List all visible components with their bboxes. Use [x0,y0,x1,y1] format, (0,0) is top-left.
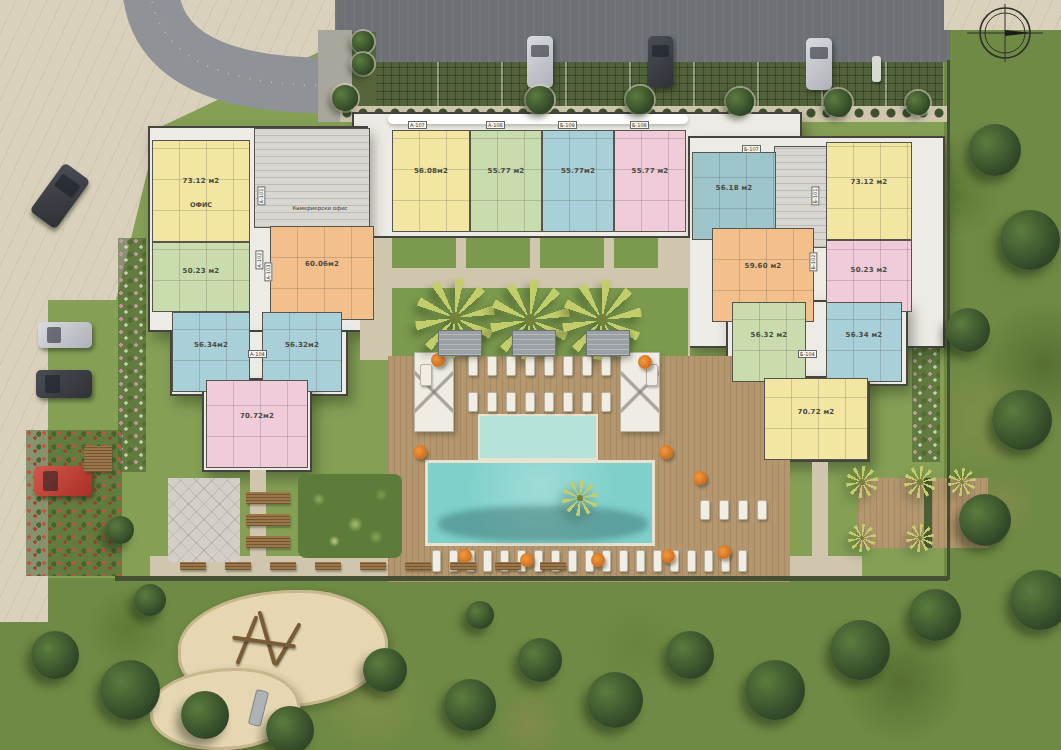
sun-lounger [544,356,554,376]
sun-lounger [525,356,535,376]
wild-tree [587,672,643,728]
unit-area-label: 56.18 м2 [693,184,775,192]
trimmed-tree [526,86,554,114]
wild-tree [745,660,805,720]
unit-code-tab: А-108 [486,121,505,129]
unit-code-tab: А-103 [264,263,272,282]
orange-umbrella [659,445,673,459]
unit-code-tab: Б-101 [811,187,819,206]
wild-tree [31,631,79,679]
path-bench [270,562,296,570]
palm-tree-small [904,466,936,498]
parked-car [29,162,90,229]
sun-lounger [506,392,516,412]
garden-pergola [586,330,630,356]
sun-lounger [544,392,554,412]
apartment-unit: 56.18 м2 [692,152,776,240]
sun-lounger [700,500,710,520]
apartment-unit: 55.77 м2 [614,130,686,232]
path-bench [315,562,341,570]
sun-lounger [563,392,573,412]
unit-area-label: 70.72 м2 [765,408,867,416]
sun-lounger [432,550,441,572]
wild-tree [830,620,890,680]
trimmed-tree [906,91,930,115]
orange-umbrella [413,445,427,459]
apartment-unit: 73.12 м2 [826,142,912,240]
unit-area-label: 50.23 м2 [827,266,911,274]
apartment-unit: 70.72м2 [206,380,308,468]
sun-lounger [506,356,516,376]
orange-umbrella [458,549,472,563]
sun-lounger [719,500,729,520]
wooden-bench [246,514,290,526]
unit-area-label: 50.23 м2 [153,267,249,275]
palm-tree-small [562,480,598,516]
wild-tree [666,631,714,679]
wooden-bench [84,446,112,472]
housekeeping-office-label: Камериерски офис [284,206,356,212]
unit-area-label: 55.77 м2 [471,167,541,175]
palm-tree-small [906,524,934,552]
unit-code-tab: Б-109 [558,121,577,129]
unit-area-label: 56.08м2 [393,167,469,175]
sun-lounger [487,392,497,412]
path-bench [495,562,521,570]
apartment-unit: 50.23 м2 [152,242,250,312]
unit-area-label: 73.12 м2 [153,177,249,185]
apartment-unit: 55.77м2 [542,130,614,232]
wild-tree [959,494,1011,546]
sun-lounger [619,550,628,572]
apartment-unit: 55.77 м2 [470,130,542,232]
sun-lounger [636,550,645,572]
unit-code-tab: А-102 [255,251,263,270]
unit-code-tab: А-101 [257,187,265,206]
wild-tree [992,390,1052,450]
wild-tree [181,691,229,739]
wild-tree [1000,210,1060,270]
site-plan-canvas: Камериерски офис 73.12 м2ОФИС50.23 м260.… [0,0,1061,750]
apartment-unit: 56.08м2 [392,130,470,232]
path-bench [405,562,431,570]
wild-tree [946,308,990,352]
palm-tree-small [846,466,878,498]
garden-pergola [438,330,482,356]
unit-area-label: 56.34 м2 [827,331,901,339]
sun-lounger [601,392,611,412]
parked-car [648,36,673,88]
wild-tree [518,638,562,682]
unit-area-label: 55.77 м2 [615,167,685,175]
sun-lounger [563,356,573,376]
unit-code-tab: Б-102 [809,253,817,272]
wild-tree [1010,570,1061,630]
orange-umbrella [693,471,707,485]
apartment-unit: 73.12 м2ОФИС [152,140,250,242]
path-bench [540,562,566,570]
orange-umbrella [520,553,534,567]
trimmed-tree [824,89,852,117]
unit-code-tab: Б-107 [742,145,761,153]
sun-lounger [582,392,592,412]
apartment-unit: 56.32 м2 [732,302,806,382]
wild-tree [466,601,494,629]
sun-lounger [582,356,592,376]
parked-car [806,38,832,90]
sun-lounger [420,364,432,386]
orange-umbrella [591,553,605,567]
sun-lounger [738,500,748,520]
orange-umbrella [717,545,731,559]
unit-code-tab: А-107 [408,121,427,129]
trimmed-tree [726,88,754,116]
palm-tree-small [848,524,876,552]
garden-pergola [512,330,556,356]
dynamic-feature-layer: 73.12 м2ОФИС50.23 м260.06м256.34м256.32м… [0,0,1061,750]
sun-lounger [483,550,492,572]
trimmed-tree [332,85,358,111]
wild-tree [266,706,314,750]
unit-code-tab: А-104 [248,350,267,358]
unit-area-label: 56.32м2 [263,341,341,349]
unit-office-label: ОФИС [153,201,249,209]
trimmed-tree [352,31,374,53]
sun-lounger [468,356,478,376]
sun-lounger [601,356,611,376]
wild-tree [106,516,134,544]
trimmed-tree [626,86,654,114]
apartment-unit: 60.06м2 [270,226,374,320]
palm-tree-small [948,468,976,496]
wild-tree [444,679,496,731]
orange-umbrella [661,549,675,563]
path-bench [225,562,251,570]
unit-code-tab: Б-108 [630,121,649,129]
unit-area-label: 73.12 м2 [827,178,911,186]
apartment-unit: 70.72 м2 [764,378,868,460]
sun-lounger [487,356,497,376]
parked-car [527,36,553,88]
unit-area-label: 60.06м2 [271,260,373,268]
orange-umbrella [638,355,652,369]
wild-tree [909,589,961,641]
apartment-unit: 56.34 м2 [826,302,902,382]
wild-tree [969,124,1021,176]
parked-car [38,322,92,348]
wild-tree [134,584,166,616]
parked-car [36,370,92,398]
wild-tree [363,648,407,692]
sun-lounger [468,392,478,412]
wild-tree [100,660,160,720]
unit-area-label: 56.34м2 [173,341,249,349]
unit-code-tab: Б-104 [798,350,817,358]
path-bench [180,562,206,570]
unit-area-label: 55.77м2 [543,167,613,175]
parked-motorbike [872,56,881,82]
path-bench [360,562,386,570]
trimmed-tree [352,53,374,75]
sun-lounger [687,550,696,572]
unit-area-label: 70.72м2 [207,412,307,420]
unit-area-label: 56.32 м2 [733,331,805,339]
sun-lounger [525,392,535,412]
sun-lounger [568,550,577,572]
wooden-bench [246,492,290,504]
sun-lounger [757,500,767,520]
path-bench [450,562,476,570]
sun-lounger [738,550,747,572]
sun-lounger [704,550,713,572]
wooden-bench [246,536,290,548]
unit-area-label: 59.60 м2 [713,262,813,270]
